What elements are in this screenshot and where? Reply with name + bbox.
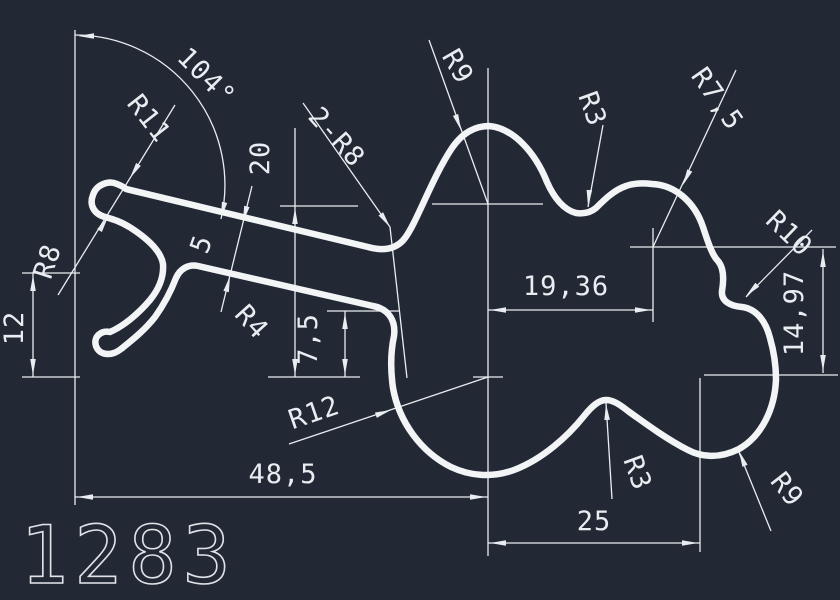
dim-7-5-label: 7,5: [293, 313, 324, 365]
dim-48-5-label: 48,5: [248, 459, 317, 490]
dim-14-97-label: 14,97: [779, 270, 810, 356]
dim-25-label: 25: [577, 506, 612, 537]
drawing-number: 1283: [20, 509, 237, 600]
dim-19-36-label: 19,36: [523, 271, 609, 302]
dim-12-label: 12: [0, 311, 30, 346]
cad-canvas[interactable]: 104° R11 R8 12 2-R8 20 5 R4 7,5 R9 R3 R7…: [0, 0, 840, 600]
dim-20-label: 20: [245, 141, 276, 176]
